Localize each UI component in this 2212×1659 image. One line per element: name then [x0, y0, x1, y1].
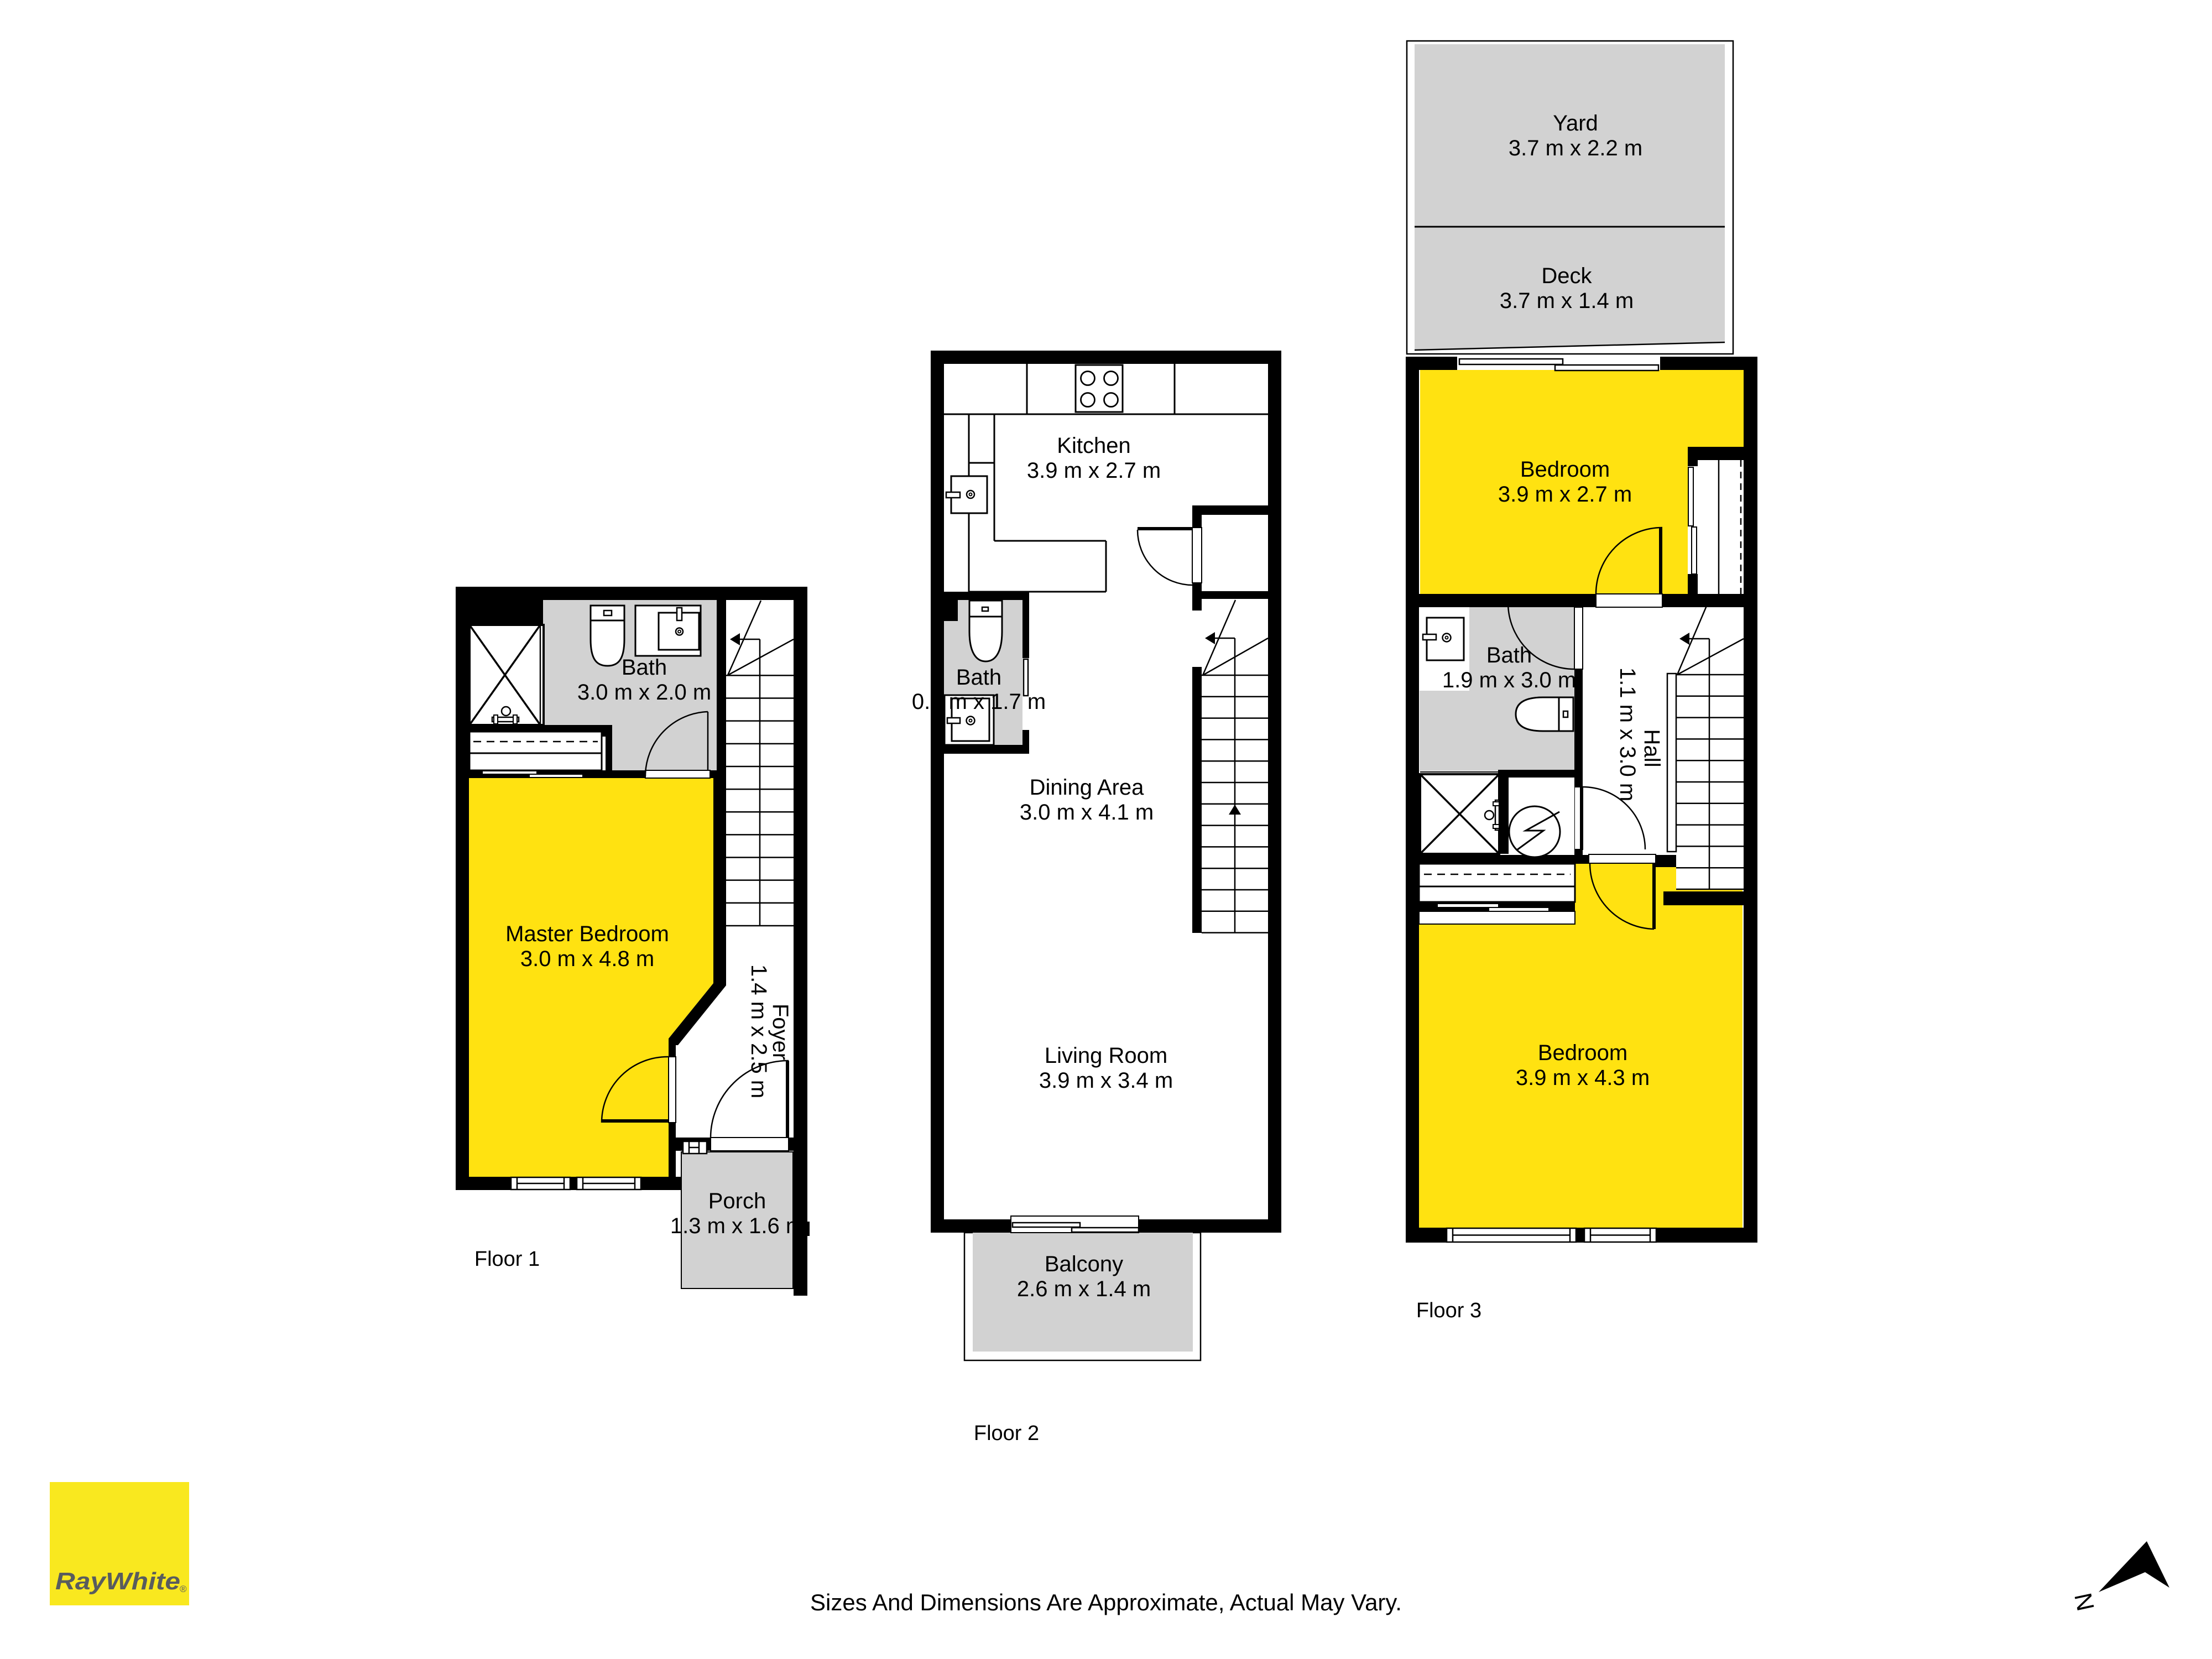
svg-text:Dining Area: Dining Area	[1030, 775, 1145, 800]
svg-text:3.7 m x 1.4 m: 3.7 m x 1.4 m	[1500, 289, 1634, 313]
svg-text:3.0 m x 4.8 m: 3.0 m x 4.8 m	[520, 947, 654, 971]
svg-text:Sizes And Dimensions Are Appro: Sizes And Dimensions Are Approximate, Ac…	[810, 1589, 1402, 1615]
svg-text:Balcony: Balcony	[1045, 1252, 1123, 1276]
svg-text:1.1 m x 3.0 m: 1.1 m x 3.0 m	[1615, 667, 1640, 801]
svg-text:Foyer: Foyer	[768, 1004, 792, 1060]
svg-text:Bedroom: Bedroom	[1538, 1041, 1627, 1065]
svg-text:Bath: Bath	[1486, 643, 1532, 667]
svg-text:Bedroom: Bedroom	[1520, 457, 1610, 482]
svg-text:RayWhite: RayWhite	[55, 1568, 180, 1595]
svg-text:1.3 m x 1.6 m: 1.3 m x 1.6 m	[670, 1214, 804, 1238]
svg-text:Deck: Deck	[1541, 264, 1592, 288]
svg-text:®: ®	[180, 1584, 187, 1594]
svg-text:Kitchen: Kitchen	[1057, 434, 1130, 458]
svg-text:Bath: Bath	[622, 655, 667, 680]
svg-text:Hall: Hall	[1640, 729, 1664, 768]
svg-text:3.9 m x 2.7 m: 3.9 m x 2.7 m	[1027, 458, 1161, 483]
svg-text:Living Room: Living Room	[1045, 1044, 1167, 1068]
svg-text:Floor 2: Floor 2	[974, 1422, 1039, 1445]
svg-text:2.6 m x 1.4 m: 2.6 m x 1.4 m	[1017, 1277, 1151, 1301]
svg-text:Master Bedroom: Master Bedroom	[505, 922, 669, 946]
svg-text:Yard: Yard	[1553, 111, 1598, 135]
svg-text:0.9 m x 1.7 m: 0.9 m x 1.7 m	[912, 690, 1046, 714]
svg-text:Floor 1: Floor 1	[474, 1248, 540, 1271]
svg-text:Porch: Porch	[708, 1189, 766, 1213]
svg-text:1.4 m x 2.5 m: 1.4 m x 2.5 m	[747, 964, 771, 1098]
svg-text:3.7 m x 2.2 m: 3.7 m x 2.2 m	[1509, 136, 1642, 160]
svg-text:3.0 m x 2.0 m: 3.0 m x 2.0 m	[577, 680, 711, 705]
svg-text:3.9 m x 2.7 m: 3.9 m x 2.7 m	[1498, 482, 1632, 507]
svg-text:Floor 3: Floor 3	[1416, 1299, 1481, 1322]
svg-text:3.9 m x 3.4 m: 3.9 m x 3.4 m	[1039, 1068, 1173, 1093]
svg-text:3.9 m x 4.3 m: 3.9 m x 4.3 m	[1516, 1066, 1650, 1090]
svg-text:Bath: Bath	[956, 665, 1001, 690]
svg-text:3.0 m x 4.1 m: 3.0 m x 4.1 m	[1020, 800, 1154, 825]
svg-text:1.9 m x 3.0 m: 1.9 m x 3.0 m	[1442, 668, 1576, 692]
